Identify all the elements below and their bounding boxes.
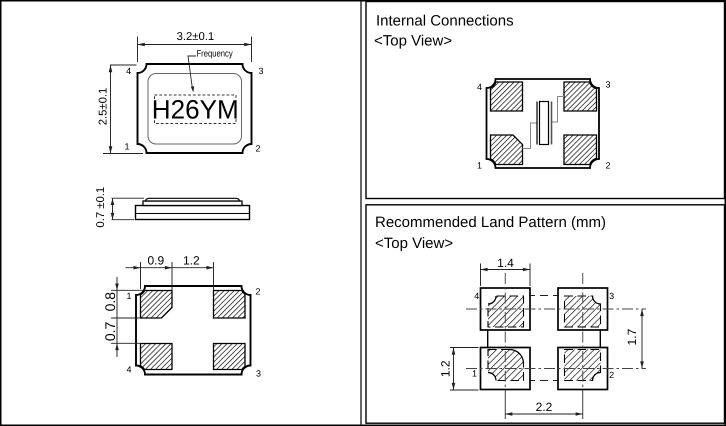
- svg-text:0.7 ±0.1: 0.7 ±0.1: [95, 187, 107, 228]
- svg-text:0.9: 0.9: [147, 253, 164, 267]
- svg-text:Frequency: Frequency: [197, 48, 233, 58]
- svg-text:H26YM: H26YM: [152, 94, 239, 124]
- svg-text:1: 1: [124, 142, 129, 152]
- svg-text:3: 3: [256, 369, 261, 379]
- svg-text:1.2: 1.2: [183, 253, 200, 267]
- svg-text:2.5±0.1: 2.5±0.1: [98, 88, 110, 126]
- svg-text:2: 2: [605, 161, 610, 171]
- svg-text:4: 4: [126, 365, 131, 375]
- svg-text:3: 3: [258, 66, 263, 76]
- svg-text:1: 1: [472, 369, 477, 379]
- svg-text:<Top View>: <Top View>: [374, 33, 452, 50]
- svg-text:3: 3: [609, 291, 614, 301]
- svg-text:2: 2: [255, 287, 260, 297]
- svg-text:4: 4: [474, 291, 479, 301]
- svg-text:4: 4: [477, 82, 482, 92]
- svg-text:1.7: 1.7: [625, 328, 639, 345]
- svg-text:4: 4: [126, 66, 131, 76]
- svg-text:2: 2: [255, 144, 260, 154]
- svg-text:1.2: 1.2: [439, 360, 453, 377]
- svg-text:1: 1: [126, 291, 131, 301]
- svg-text:2.2: 2.2: [536, 400, 553, 414]
- svg-text:2: 2: [609, 370, 614, 380]
- svg-text:Internal Connections: Internal Connections: [376, 12, 514, 29]
- svg-text:0.8: 0.8: [102, 292, 118, 312]
- svg-text:1.4: 1.4: [497, 256, 514, 270]
- svg-text:1: 1: [477, 161, 482, 171]
- svg-text:0.7: 0.7: [102, 321, 118, 341]
- svg-text:3: 3: [605, 80, 610, 90]
- svg-text:<Top View>: <Top View>: [375, 235, 453, 252]
- svg-text:3.2±0.1: 3.2±0.1: [177, 31, 215, 43]
- svg-text:Recommended Land Pattern (mm): Recommended Land Pattern (mm): [375, 214, 606, 231]
